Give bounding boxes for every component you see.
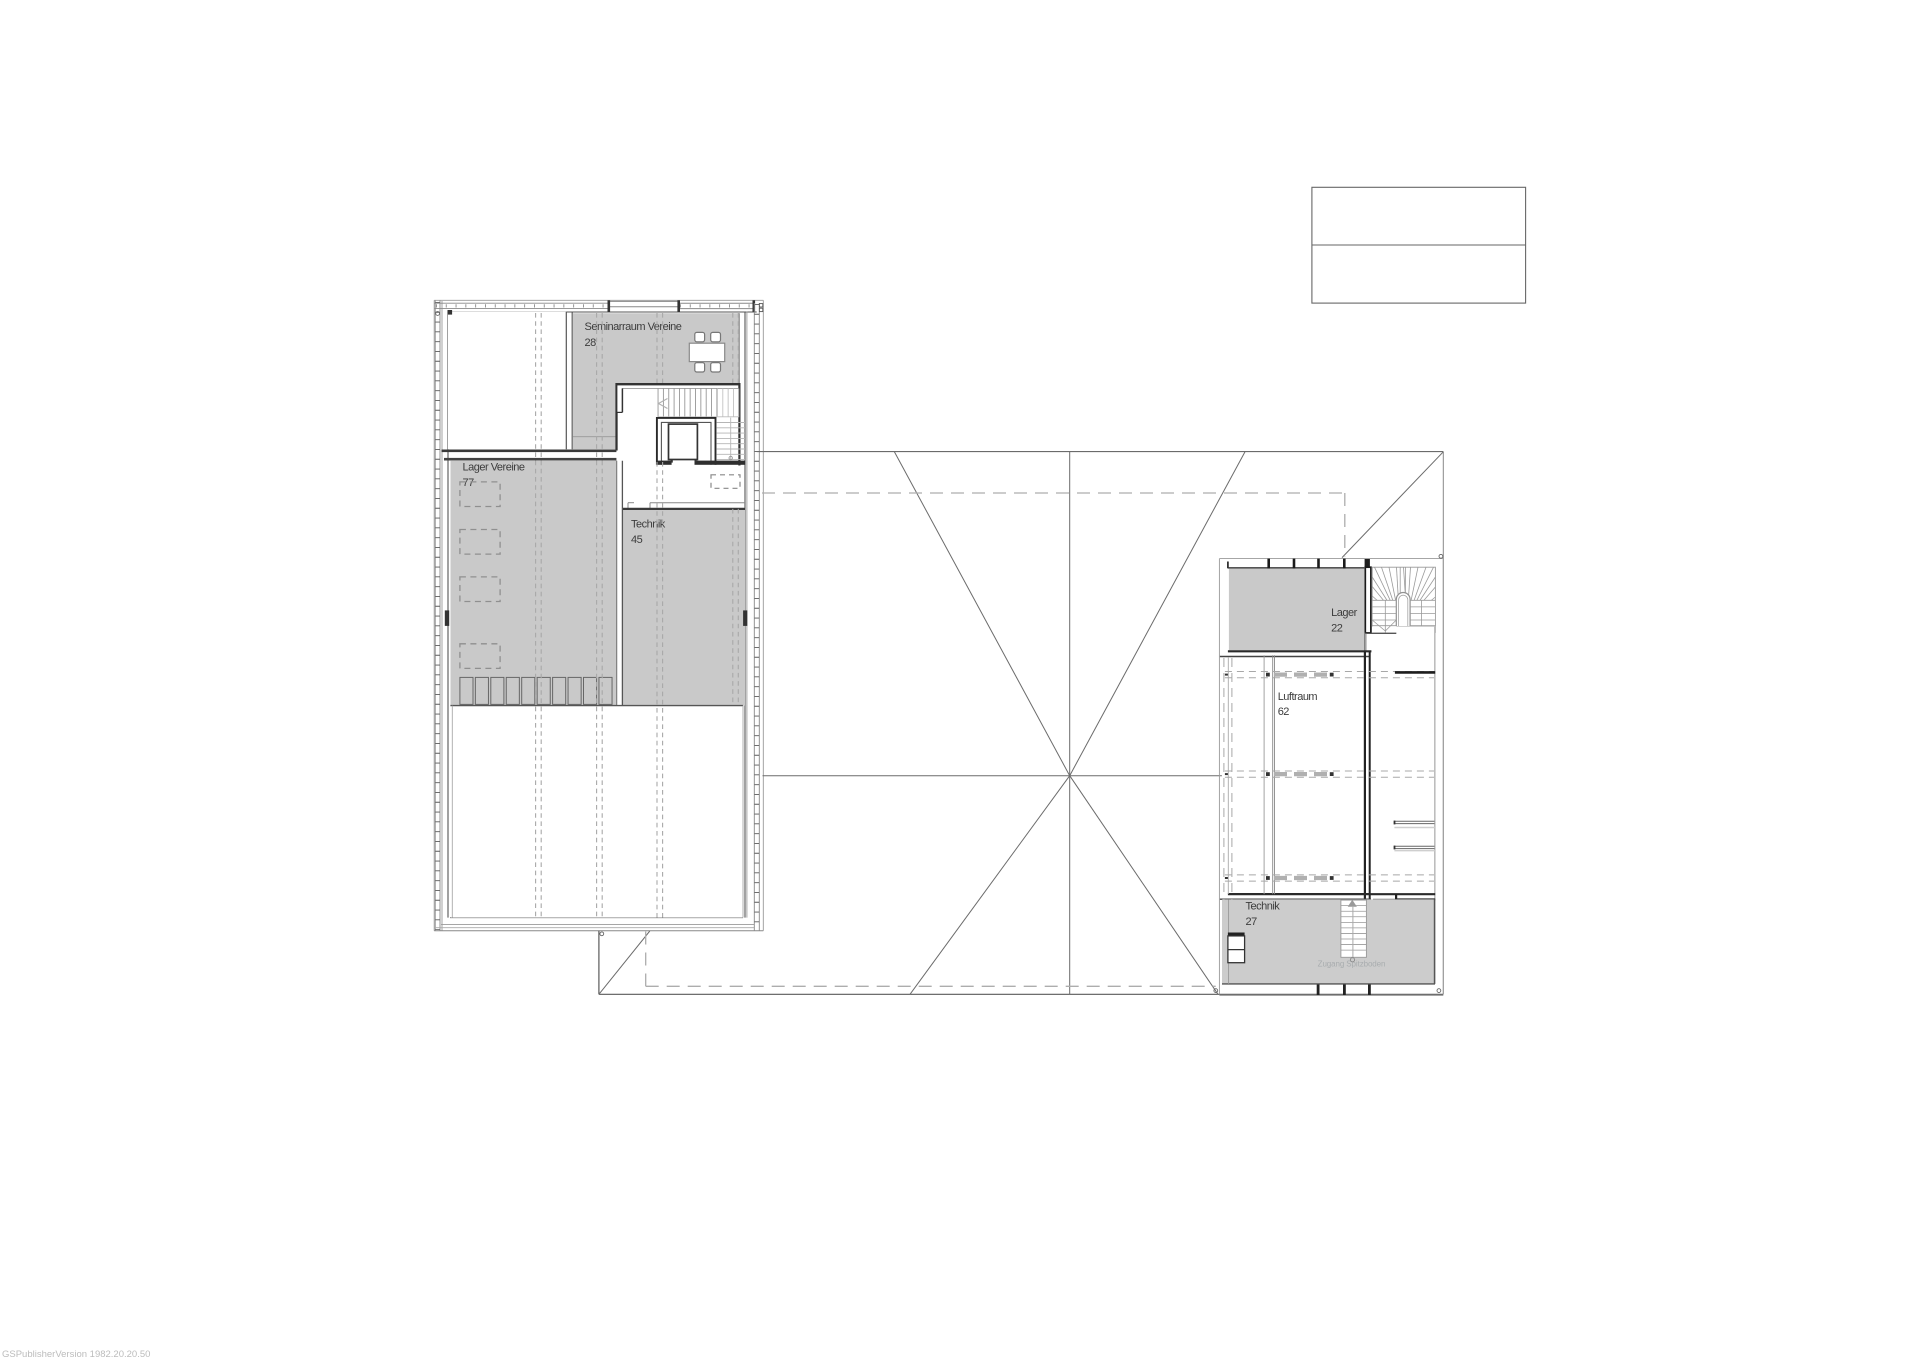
svg-text:Zugang Spitzboden: Zugang Spitzboden	[1318, 960, 1386, 969]
svg-text:28: 28	[585, 337, 597, 349]
svg-text:Technik: Technik	[631, 519, 666, 531]
svg-text:62: 62	[1278, 706, 1290, 718]
svg-text:77: 77	[463, 477, 475, 489]
svg-text:Seminarraum Vereine: Seminarraum Vereine	[585, 321, 682, 333]
svg-text:45: 45	[631, 534, 643, 546]
svg-text:Lager: Lager	[1331, 607, 1357, 619]
svg-text:Lager Vereine: Lager Vereine	[463, 462, 525, 474]
svg-text:Luftraum: Luftraum	[1278, 691, 1318, 703]
svg-text:22: 22	[1331, 623, 1343, 635]
svg-text:27: 27	[1246, 916, 1258, 928]
svg-text:GSPublisherVersion 1982.20.20.: GSPublisherVersion 1982.20.20.50	[2, 1349, 150, 1358]
svg-text:Technik: Technik	[1246, 901, 1281, 913]
